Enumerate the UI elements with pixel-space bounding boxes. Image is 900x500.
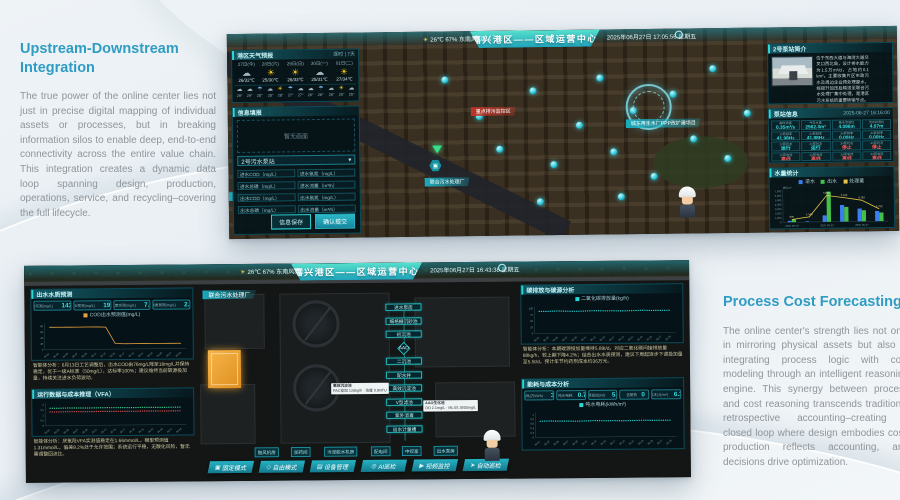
weather-hour: ☁27° bbox=[295, 86, 305, 99]
building bbox=[414, 297, 510, 368]
svg-text:06-01: 06-01 bbox=[533, 336, 540, 343]
svg-text:06-07: 06-07 bbox=[72, 352, 79, 359]
svg-text:06-21: 06-21 bbox=[627, 335, 634, 342]
flow-node[interactable]: AAO bbox=[386, 344, 422, 351]
chevron-down-icon: ▾ bbox=[348, 156, 351, 163]
weather-hour: ☂28° bbox=[255, 87, 265, 100]
svg-text:06-01: 06-01 bbox=[43, 352, 50, 359]
svg-text:06-15: 06-15 bbox=[110, 428, 117, 435]
stat-chip: 成本(元/m³)6.33 bbox=[651, 389, 681, 399]
svg-text:06-15: 06-15 bbox=[600, 439, 607, 446]
sun-icon: ☀ bbox=[423, 37, 428, 44]
header-datetime: 2025年06月27日 17:05:56 星期五 bbox=[607, 31, 696, 41]
svg-text:06-19: 06-19 bbox=[128, 351, 135, 358]
svg-text:4,782: 4,782 bbox=[858, 195, 865, 199]
site-label[interactable]: 配电间 bbox=[371, 446, 391, 456]
map-dashboard: 重点排污监控区 城东再生水厂PPP改扩建项目 联合污水处理厂 2号污水泵站 ▣ … bbox=[227, 26, 899, 239]
svg-text:06-03: 06-03 bbox=[54, 428, 61, 435]
weather-hour: ☁25° bbox=[346, 86, 356, 99]
svg-text:06-01: 06-01 bbox=[534, 440, 541, 447]
svg-text:2025-06-27: 2025-06-27 bbox=[855, 223, 869, 227]
svg-text:06-19: 06-19 bbox=[618, 335, 625, 342]
toolbar-icon: ➤ bbox=[470, 461, 476, 468]
svg-text:2025-06-23: 2025-06-23 bbox=[820, 223, 834, 227]
svg-text:50: 50 bbox=[530, 319, 533, 323]
dashboard-title-banner: 嘉兴港区——区域运营中心 bbox=[470, 30, 600, 49]
svg-text:06-23: 06-23 bbox=[638, 439, 645, 446]
svg-text:06-23: 06-23 bbox=[147, 351, 154, 358]
svg-text:06-19: 06-19 bbox=[129, 427, 136, 434]
stat-chip: 吨水电耗0.7 bbox=[556, 390, 586, 400]
weather-hour: ☁26° bbox=[306, 86, 316, 99]
form-field[interactable]: 进水COD（mg/L） bbox=[237, 169, 295, 178]
svg-text:06-23: 06-23 bbox=[637, 335, 644, 342]
svg-text:06-05: 06-05 bbox=[552, 336, 559, 343]
weather-icon: ☀ bbox=[332, 67, 357, 77]
weather-hour: ☁29° bbox=[234, 87, 244, 100]
metric-box: 3#泵状态停止 bbox=[832, 140, 861, 150]
map-marker[interactable] bbox=[550, 161, 557, 168]
process-body: The online center's strength lies not on… bbox=[723, 325, 900, 471]
water-stats-panel: 水量统计 进水 出水 处理量 01,0002,0003,0004,0005,00… bbox=[768, 166, 895, 230]
svg-text:0.6: 0.6 bbox=[530, 422, 534, 426]
metric-box: 1#泵电流离线 bbox=[771, 152, 800, 162]
engineer-mascot bbox=[484, 430, 501, 461]
stat-chip: 碳源投加(t/d)5.89 bbox=[588, 390, 618, 400]
toolbar-button[interactable]: ▣固定模式 bbox=[208, 461, 254, 473]
weather-tabs[interactable]: 逐时 | 7天 bbox=[333, 51, 355, 58]
metric-box: 2#泵电流离线 bbox=[802, 151, 831, 161]
svg-text:4,000: 4,000 bbox=[775, 203, 782, 207]
form-field[interactable]: 进水流量（m³/h） bbox=[298, 181, 356, 190]
flow-node[interactable]: 高效沉淀池 bbox=[386, 384, 422, 391]
energy-chips: 总电耗(万kWh)37.2吨水电耗0.7碳源投加(t/d)5.89告警数0成本(… bbox=[522, 387, 683, 400]
stat-chip: 氨氮预测(mg/L)2.66 bbox=[153, 299, 191, 309]
map-marker[interactable] bbox=[617, 193, 624, 200]
form-field[interactable]: 出水流量（m³/h） bbox=[298, 205, 356, 214]
video-preview-area[interactable]: 暂无画面 bbox=[237, 119, 355, 153]
svg-text:06-15: 06-15 bbox=[599, 335, 606, 342]
svg-text:06-03: 06-03 bbox=[53, 352, 60, 359]
vfa-chart: 00.511.5206-0106-0306-0506-0706-0906-110… bbox=[32, 397, 190, 434]
svg-text:06-25: 06-25 bbox=[646, 335, 653, 342]
svg-text:06-07: 06-07 bbox=[562, 336, 569, 343]
effluent-forecast-chart: 02040608006-0106-0306-0506-0706-0906-110… bbox=[32, 317, 190, 358]
svg-text:5,930: 5,930 bbox=[823, 191, 830, 195]
station-select[interactable]: 2号污水泵站▾ bbox=[237, 155, 355, 166]
effluent-panel-title: 出水水质预测 bbox=[36, 289, 72, 298]
svg-text:06-17: 06-17 bbox=[609, 335, 616, 342]
svg-text:单位:m³: 单位:m³ bbox=[783, 186, 792, 190]
svg-text:06-09: 06-09 bbox=[572, 440, 579, 447]
selected-building-highlight[interactable] bbox=[208, 350, 241, 388]
toolbar-icon: ▶ bbox=[419, 462, 425, 469]
svg-text:06-11: 06-11 bbox=[581, 336, 588, 342]
upstream-section: Upstream-Downstream Integration The true… bbox=[20, 40, 216, 221]
svg-text:06-09: 06-09 bbox=[82, 428, 89, 435]
metric-box: 1#泵状态运行 bbox=[771, 141, 800, 151]
stat-chip: 总电耗(万kWh)37.2 bbox=[524, 390, 554, 400]
carbon-panel-title: 碳排放与碳源分析 bbox=[526, 285, 574, 294]
svg-text:06-29: 06-29 bbox=[666, 439, 673, 446]
svg-text:06-11: 06-11 bbox=[91, 428, 98, 434]
metric-box: 2#泵状态运行 bbox=[801, 141, 830, 151]
station-metrics-panel: 泵站信息2025-06-27 16:16:00 瞬时流量0.35m³/s今日水量… bbox=[768, 107, 895, 164]
map-marker[interactable] bbox=[529, 88, 536, 95]
svg-text:06-05: 06-05 bbox=[553, 440, 560, 447]
header-weather-info: ☀26℃ 67% 东南风3级 bbox=[423, 34, 487, 44]
svg-text:0: 0 bbox=[42, 424, 44, 428]
metrics-grid: 瞬时流量0.35m³/s今日水量2562.3m³集水池液位4.096m出水井液位… bbox=[769, 117, 894, 164]
metrics-panel-title: 泵站信息 bbox=[774, 109, 798, 118]
svg-text:06-13: 06-13 bbox=[591, 439, 598, 446]
stat-chip: COD实测(mg/L)143.76 bbox=[33, 300, 71, 310]
site-label[interactable]: 鼓风机房 bbox=[255, 447, 279, 457]
svg-text:06-21: 06-21 bbox=[137, 351, 144, 358]
svg-text:1: 1 bbox=[42, 413, 44, 417]
energy-chart: 00.20.40.60.8106-0106-0306-0506-0706-090… bbox=[522, 407, 680, 446]
ai-analysis-caption: 智能体分析：厌氧段VFA实测值稳定在1.66mmol/L，模型预测值1.31mm… bbox=[34, 437, 194, 458]
toolbar-button[interactable]: ◇自由模式 bbox=[259, 460, 305, 472]
metric-box: 瞬时流量0.35m³/s bbox=[771, 120, 800, 130]
ai-analysis-caption: 智能体分析：本期碳源投加量维持5.89t/d，对应二氧化碳间接排放量88kg/h… bbox=[523, 345, 683, 376]
svg-text:06-25: 06-25 bbox=[156, 351, 163, 358]
svg-text:7,000: 7,000 bbox=[775, 189, 782, 193]
svg-text:80: 80 bbox=[40, 324, 43, 328]
svg-text:2,000: 2,000 bbox=[775, 211, 782, 215]
svg-text:1.5: 1.5 bbox=[40, 408, 44, 412]
svg-text:06-07: 06-07 bbox=[72, 428, 79, 435]
legend-swatch bbox=[579, 403, 583, 407]
station-intro-panel: 2号泵站简介 位于东西大道与海湾大道交叉口西北角，设计排水能力为1.5万m³/d… bbox=[767, 42, 894, 105]
svg-text:06-05: 06-05 bbox=[63, 428, 70, 435]
legend-swatch bbox=[799, 180, 803, 184]
stat-chip: COD预测(mg/L)19.33 bbox=[73, 300, 111, 310]
map-label-banner[interactable]: 城东再生水厂PPP改扩建项目 bbox=[626, 118, 701, 128]
toolbar-button[interactable]: ▶视频监控 bbox=[412, 459, 458, 471]
weather-day: 29日(日)☀26/33℃ bbox=[283, 60, 308, 83]
upstream-body: The true power of the online center lies… bbox=[20, 90, 216, 221]
flow-node[interactable]: 初沉池 bbox=[386, 330, 422, 337]
svg-text:0.4: 0.4 bbox=[530, 426, 534, 430]
weather-icon: ☁ bbox=[234, 68, 259, 78]
svg-text:100: 100 bbox=[529, 306, 534, 310]
weather-hour: ☁28° bbox=[265, 87, 275, 100]
clarifier-tank[interactable] bbox=[292, 300, 339, 347]
weather-hours: ☁29°☁29°☂28°☁28°☀28°☂27°☁27°☁26°☂26°☁26°… bbox=[234, 84, 356, 100]
svg-text:1: 1 bbox=[532, 412, 534, 416]
energy-panel: 能耗与成本分析 总电耗(万kWh)37.2吨水电耗0.7碳源投加(t/d)5.8… bbox=[521, 377, 685, 450]
metric-box: 3#泵电流离线 bbox=[832, 151, 861, 161]
svg-text:06-23: 06-23 bbox=[148, 427, 155, 434]
map-marker[interactable] bbox=[690, 135, 697, 142]
report-form-panel: 信息填报 暂无画面 2号污水泵站▾ 进水COD（mg/L）进水氨氮（mg/L）进… bbox=[232, 105, 362, 235]
weather-day: 28日(六)☀25/30℃ bbox=[259, 60, 284, 83]
legend-swatch bbox=[821, 179, 825, 183]
flow-node[interactable]: 配水井 bbox=[386, 371, 422, 378]
form-field[interactable]: 出水COD（mg/L） bbox=[238, 193, 296, 202]
svg-text:2,762: 2,762 bbox=[876, 204, 883, 208]
svg-text:06-29: 06-29 bbox=[665, 335, 672, 342]
svg-text:06-27: 06-27 bbox=[166, 351, 173, 358]
building bbox=[200, 384, 256, 444]
sun-icon: ☀ bbox=[240, 269, 245, 276]
metric-box: 1#泵频率41.98Hz bbox=[771, 131, 800, 141]
svg-text:0.5: 0.5 bbox=[40, 418, 44, 422]
svg-text:3,000: 3,000 bbox=[775, 207, 782, 211]
flow-node[interactable]: 紫外消毒 bbox=[386, 411, 422, 418]
map-marker[interactable] bbox=[744, 110, 751, 117]
svg-text:5,000: 5,000 bbox=[775, 198, 782, 202]
metric-box: 3#泵频率0.00Hz bbox=[831, 130, 860, 140]
carbon-panel: 碳排放与碳源分析 二氧化碳排放量(kg/h) 025507510006-0106… bbox=[520, 283, 684, 344]
header-datetime: 2025年06月27日 16:43:38 星期五 bbox=[430, 265, 519, 275]
map-marker[interactable] bbox=[496, 146, 503, 153]
svg-text:0: 0 bbox=[532, 331, 534, 335]
water-panel-title: 水量统计 bbox=[774, 168, 798, 177]
flow-node[interactable]: 细格栅沉砂池 bbox=[386, 317, 422, 324]
legend-swatch bbox=[84, 313, 88, 317]
svg-text:605: 605 bbox=[790, 215, 795, 219]
svg-text:06-13: 06-13 bbox=[590, 335, 597, 342]
toolbar-icon: ◎ bbox=[371, 462, 378, 469]
metric-box: 今日水量2562.3m³ bbox=[801, 120, 830, 130]
svg-text:06-05: 06-05 bbox=[62, 352, 69, 359]
metric-box: 2#泵频率41.98Hz bbox=[801, 130, 830, 140]
map-alert-banner[interactable]: 重点排污监控区 bbox=[471, 107, 516, 117]
svg-text:5,412: 5,412 bbox=[841, 193, 848, 197]
effluent-chips: COD实测(mg/L)143.76COD预测(mg/L)19.33氨氮实测(mg… bbox=[31, 297, 192, 310]
ai-analysis-caption: 智能体分析：6月13日工艺调整后，出水COD由76mg/L降至18mg/L并保持… bbox=[33, 361, 193, 386]
save-button[interactable]: 信息保存 bbox=[271, 214, 311, 229]
metrics-timestamp: 2025-06-27 16:16:00 bbox=[843, 110, 890, 117]
weather-icon: ☀ bbox=[259, 67, 284, 77]
svg-text:20: 20 bbox=[40, 342, 43, 346]
svg-text:0: 0 bbox=[780, 220, 782, 224]
site-labels: 鼓风机房加药间污泥脱水机房配电间中控室出水泵房 bbox=[251, 444, 462, 459]
flow-node[interactable]: V型滤池 bbox=[386, 398, 422, 405]
flow-node[interactable]: 二沉池 bbox=[386, 357, 422, 364]
building bbox=[204, 294, 264, 350]
form-field[interactable]: 进水总磷（mg/L） bbox=[238, 181, 296, 190]
svg-text:6,000: 6,000 bbox=[775, 194, 782, 198]
map-marker[interactable] bbox=[670, 90, 677, 97]
weather-hour: ☂27° bbox=[285, 86, 295, 99]
map-marker[interactable] bbox=[724, 155, 731, 162]
svg-text:06-15: 06-15 bbox=[109, 352, 116, 359]
energy-panel-title: 能耗与成本分析 bbox=[527, 379, 569, 388]
metric-box: 4#泵状态停止 bbox=[862, 140, 891, 150]
svg-text:06-01: 06-01 bbox=[44, 428, 51, 435]
info-card: AAO生化池DO 2.1mg/L · MLSS 3500mg/L bbox=[423, 400, 478, 412]
upstream-heading: Upstream-Downstream Integration bbox=[20, 40, 216, 77]
header-weather-info: ☀26℃ 67% 东南风3级 bbox=[240, 266, 304, 276]
svg-text:06-19: 06-19 bbox=[619, 439, 626, 446]
weather-day: 01日(二)☀27/34℃ bbox=[332, 60, 357, 83]
weather-icon: ☀ bbox=[283, 67, 308, 77]
weather-icon: ☂ bbox=[255, 87, 265, 94]
plant-dashboard: 联合污水处理厂 进水泵房细格栅沉砂池初沉池AAO二沉池配水井高效沉淀池V型滤池紫… bbox=[24, 260, 691, 483]
metric-box: 出水井液位4.07m bbox=[862, 119, 891, 129]
carbon-chart: 025507510006-0106-0306-0506-0706-0906-11… bbox=[521, 301, 679, 342]
form-panel-title: 信息填报 bbox=[238, 108, 262, 117]
map-marker[interactable] bbox=[596, 75, 603, 82]
svg-text:0: 0 bbox=[42, 348, 44, 352]
svg-text:2025-06-19: 2025-06-19 bbox=[785, 224, 799, 228]
weather-hour: ☀28° bbox=[275, 86, 285, 99]
svg-text:06-11: 06-11 bbox=[91, 352, 98, 358]
site-label[interactable]: 污泥脱水机房 bbox=[324, 447, 357, 457]
svg-text:06-17: 06-17 bbox=[119, 352, 126, 359]
weather-hour: ☂26° bbox=[316, 86, 326, 99]
svg-text:06-13: 06-13 bbox=[101, 428, 108, 435]
weather-day: 27日(今)☁26/32℃ bbox=[234, 61, 259, 84]
intro-panel-title: 2号泵站简介 bbox=[773, 44, 806, 53]
water-stats-chart: 01,0002,0003,0004,0005,0006,0007,000单位:m… bbox=[770, 184, 893, 229]
location-arrow-icon[interactable] bbox=[432, 145, 442, 153]
svg-text:06-27: 06-27 bbox=[656, 335, 663, 342]
weather-day: 30日(一)☁25/31℃ bbox=[307, 60, 332, 83]
svg-text:25: 25 bbox=[530, 325, 533, 329]
svg-text:06-07: 06-07 bbox=[562, 440, 569, 447]
engineer-mascot bbox=[679, 186, 696, 217]
map-marker[interactable] bbox=[610, 148, 617, 155]
svg-text:75: 75 bbox=[530, 313, 533, 317]
svg-text:06-21: 06-21 bbox=[628, 439, 635, 446]
metric-box: 4#泵电流离线 bbox=[862, 150, 891, 160]
toolbar-icon: ▤ bbox=[316, 463, 323, 470]
process-heading: Process Cost Forecasting bbox=[723, 293, 900, 312]
svg-text:1,000: 1,000 bbox=[775, 216, 782, 220]
svg-text:06-25: 06-25 bbox=[157, 427, 164, 434]
svg-text:06-27: 06-27 bbox=[166, 427, 173, 434]
dashboard-title: 嘉兴港区——区域运营中心 bbox=[294, 264, 420, 278]
form-field[interactable]: 出水氨氮（mg/L） bbox=[298, 193, 356, 202]
dashboard-title: 嘉兴港区——区域运营中心 bbox=[472, 32, 598, 47]
svg-text:06-25: 06-25 bbox=[647, 439, 654, 446]
effluent-forecast-panel: 出水水质预测 COD实测(mg/L)143.76COD预测(mg/L)19.33… bbox=[30, 287, 194, 360]
toolbar-button[interactable]: ▤设备管理 bbox=[310, 460, 356, 472]
weather-panel: 港区天气预报逐时 | 7天 27日(今)☁26/32℃28日(六)☀25/30℃… bbox=[231, 48, 360, 103]
svg-text:0: 0 bbox=[533, 435, 535, 439]
dashboard-title-banner: 嘉兴港区——区域运营中心 bbox=[291, 262, 422, 280]
weather-icon: ☁ bbox=[307, 67, 332, 77]
process-section: Process Cost Forecasting The online cent… bbox=[723, 293, 900, 470]
form-field[interactable]: 进水氨氮（mg/L） bbox=[297, 169, 355, 178]
weather-days: 27日(今)☁26/32℃28日(六)☀25/30℃29日(日)☀26/33℃3… bbox=[232, 58, 358, 85]
stat-chip: 氨氮实测(mg/L)7.96 bbox=[113, 300, 151, 310]
submit-button[interactable]: 确认提交 bbox=[315, 214, 355, 229]
flow-node[interactable]: 进水泵房 bbox=[385, 303, 421, 310]
plant-area-label: 联合污水处理厂 bbox=[202, 290, 256, 299]
process-flow-nodes: 进水泵房细格栅沉砂池初沉池AAO二沉池配水井高效沉淀池V型滤池紫外消毒出水计量槽 bbox=[380, 302, 427, 433]
map-marker[interactable] bbox=[651, 172, 658, 179]
svg-text:06-17: 06-17 bbox=[609, 439, 616, 446]
svg-text:06-13: 06-13 bbox=[100, 352, 107, 359]
svg-text:0.8: 0.8 bbox=[530, 417, 534, 421]
globe-icon[interactable] bbox=[498, 264, 506, 272]
flow-node[interactable]: 出水计量槽 bbox=[387, 425, 423, 432]
svg-text:40: 40 bbox=[40, 336, 43, 340]
vfa-panel: 运行数据与成本推理（VFA） 00.511.5206-0106-0306-050… bbox=[31, 387, 194, 436]
svg-text:06-03: 06-03 bbox=[544, 440, 551, 447]
stat-chip: 告警数0 bbox=[620, 389, 650, 399]
svg-text:06-11: 06-11 bbox=[581, 440, 588, 446]
svg-text:2: 2 bbox=[42, 403, 44, 407]
svg-text:06-21: 06-21 bbox=[138, 427, 145, 434]
form-field[interactable]: 出水总磷（mg/L） bbox=[238, 205, 296, 214]
svg-text:06-17: 06-17 bbox=[119, 428, 126, 435]
globe-icon[interactable] bbox=[675, 31, 683, 39]
info-card: 高效沉淀池PAC投加 120kg/h · 浊度 0.8NTU bbox=[331, 383, 389, 395]
svg-text:06-29: 06-29 bbox=[175, 351, 182, 358]
legend-swatch bbox=[843, 179, 847, 183]
svg-text:1,148: 1,148 bbox=[806, 212, 813, 216]
weather-panel-title: 港区天气预报 bbox=[237, 51, 273, 60]
toolbar-icon: ▣ bbox=[214, 464, 221, 471]
weather-hour: ☀25° bbox=[336, 86, 346, 99]
site-label[interactable]: 加药间 bbox=[291, 447, 311, 457]
weather-hour: ☁26° bbox=[326, 86, 336, 99]
form-fields: 进水COD（mg/L）进水氨氮（mg/L）进水总磷（mg/L）进水流量（m³/h… bbox=[237, 168, 356, 215]
svg-text:06-09: 06-09 bbox=[571, 336, 578, 343]
intro-text: 位于东西大道与海湾大道交叉口西北角，设计排水能力为1.5万m³/d，占地约0.1… bbox=[816, 55, 869, 104]
weather-hour: ☁29° bbox=[245, 87, 255, 100]
svg-text:06-03: 06-03 bbox=[543, 336, 550, 343]
svg-text:06-29: 06-29 bbox=[176, 427, 183, 434]
station-photo bbox=[771, 56, 813, 87]
svg-text:06-27: 06-27 bbox=[656, 439, 663, 446]
site-label[interactable]: 中控室 bbox=[402, 446, 422, 456]
toolbar-button[interactable]: ◎AI巡检 bbox=[361, 460, 407, 472]
metric-box: 集水池液位4.096m bbox=[831, 119, 860, 129]
map-label-banner[interactable]: 联合污水处理厂 bbox=[425, 177, 470, 187]
svg-text:06-09: 06-09 bbox=[81, 352, 88, 359]
toolbar-icon: ◇ bbox=[266, 463, 272, 470]
weather-icon: ☂ bbox=[316, 86, 326, 93]
site-label[interactable]: 出水泵房 bbox=[434, 446, 458, 456]
svg-text:0.2: 0.2 bbox=[530, 431, 534, 435]
legend-swatch bbox=[575, 297, 579, 301]
svg-text:60: 60 bbox=[40, 330, 43, 334]
metric-box: 4#泵频率0.00Hz bbox=[862, 129, 891, 139]
